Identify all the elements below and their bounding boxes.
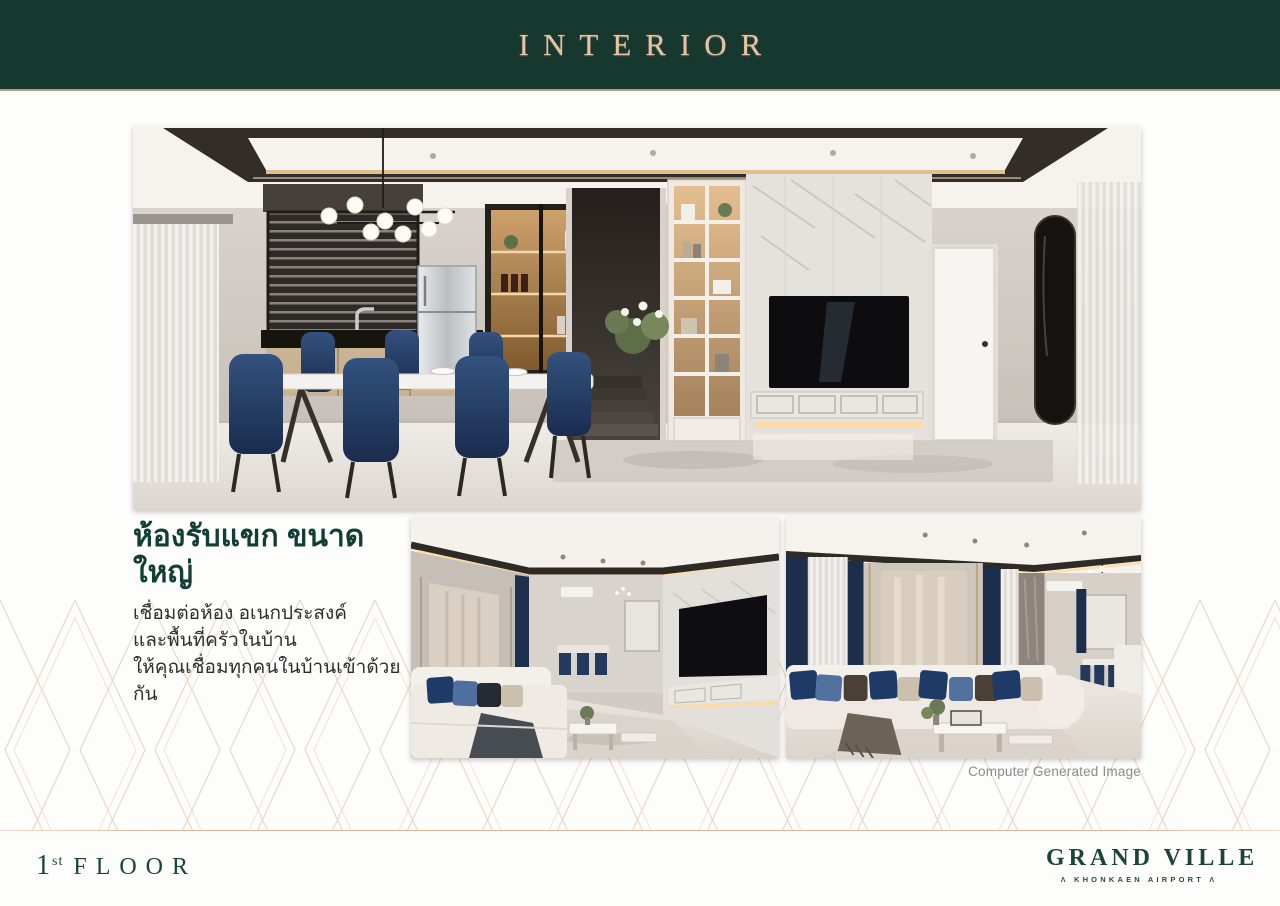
main-interior-photo — [133, 126, 1141, 510]
living-room-render-graphic-1 — [411, 517, 779, 758]
brand-subtitle-text: KHONKAEN AIRPORT — [1074, 875, 1204, 884]
floor-label: 1stFLOOR — [36, 850, 197, 882]
description-line-3: ให้คุณเชื่อมทุกคนในบ้านเข้าด้วยกัน — [133, 655, 413, 709]
description-line-1: เชื่อมต่อห้อง อเนกประสงค์ — [133, 601, 413, 628]
living-room-render-graphic-2 — [786, 517, 1141, 758]
brand-mark-left: Λ — [1061, 877, 1069, 884]
brand-subtitle: Λ KHONKAEN AIRPORT Λ — [1046, 875, 1232, 884]
description-block: ห้องรับแขก ขนาดใหญ่ เชื่อมต่อห้อง อเนกปร… — [133, 519, 413, 709]
header-band: INTERIOR — [0, 0, 1280, 91]
page-title: INTERIOR — [505, 27, 776, 63]
floor-word: FLOOR — [73, 854, 197, 880]
brand-logo: GRAND VILLE Λ KHONKAEN AIRPORT Λ — [1046, 845, 1232, 884]
floor-number: 1 — [36, 850, 52, 881]
floor-ordinal: st — [52, 854, 63, 869]
description-line-2: และพื้นที่ครัวในบ้าน — [133, 628, 413, 655]
cgi-caption: Computer Generated Image — [968, 764, 1141, 779]
living-room-photo-right — [786, 517, 1141, 758]
footer-divider — [0, 830, 1280, 831]
description-heading: ห้องรับแขก ขนาดใหญ่ — [133, 519, 413, 591]
brand-mark-right: Λ — [1209, 877, 1217, 884]
interior-render-graphic — [133, 126, 1141, 510]
brand-name: GRAND VILLE — [1046, 845, 1232, 872]
brochure-page: { "header": { "title": "INTERIOR" }, "de… — [0, 0, 1280, 906]
living-room-photo-left — [411, 517, 779, 758]
